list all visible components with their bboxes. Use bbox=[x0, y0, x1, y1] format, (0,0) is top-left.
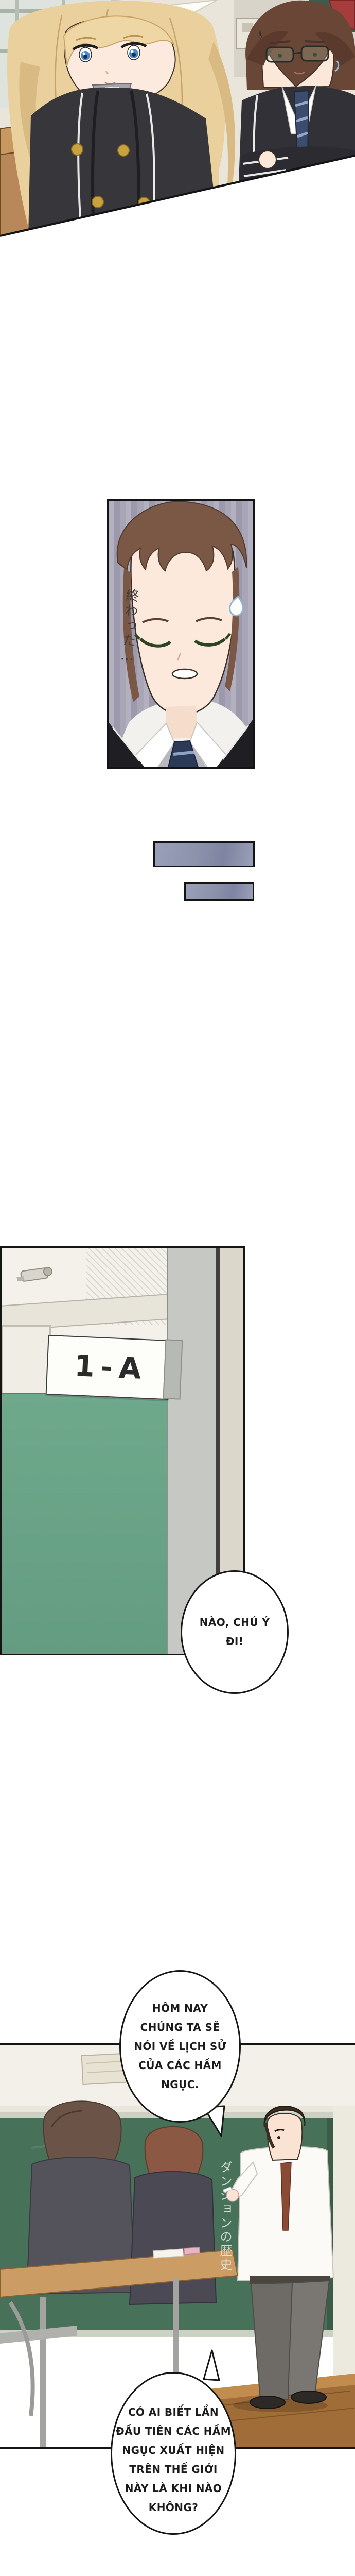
security-camera-icon bbox=[16, 1262, 62, 1288]
speech-bubble-question: CÓ AI BIẾT LẦN ĐẦU TIÊN CÁC HẦM NGỤC XUẤ… bbox=[111, 2372, 236, 2535]
panel-1-border bbox=[0, 152, 355, 240]
striped-tie bbox=[294, 91, 309, 156]
door-sign-1a: 1-A bbox=[46, 1335, 171, 1400]
webtoon-page: 終わった… 1-A NÀO, CHÚ Ý ĐI! HÔM NAY CHÚ bbox=[0, 0, 355, 2576]
sign-bracket bbox=[163, 1339, 183, 1399]
window-frame bbox=[2, 1325, 51, 1400]
door-sign-label: 1-A bbox=[68, 1349, 148, 1386]
chalk-text: ダンジョンの歴史 bbox=[216, 2161, 234, 2274]
redacted-textbox-1 bbox=[153, 841, 255, 867]
classroom-door bbox=[2, 1393, 167, 1655]
speech-bubble-attention: NÀO, CHÚ Ý ĐI! bbox=[181, 1570, 289, 1694]
bubble-3-tail bbox=[199, 2347, 223, 2383]
speech-bubble-today-history: HÔM NAY CHÚNG TA SẼ NÓI VỀ LỊCH SỬ CỦA C… bbox=[119, 1970, 241, 2123]
panel-finished-boy: 終わった… bbox=[107, 499, 255, 769]
redacted-textbox-2 bbox=[184, 882, 254, 901]
